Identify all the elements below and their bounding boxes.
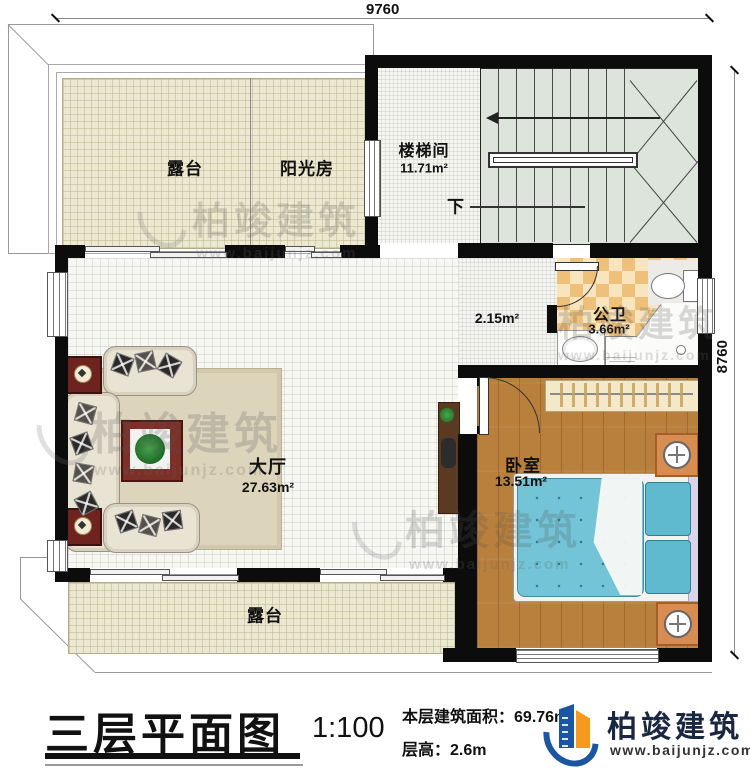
- wall-left-upper: [55, 245, 68, 272]
- desk-plant: [440, 408, 454, 422]
- plan-height-row: 层高：2.6m: [402, 736, 486, 760]
- table-plant: [135, 434, 165, 464]
- dimension-right-line: [734, 70, 735, 655]
- compass-medallion-icon: [74, 517, 92, 535]
- dimension-top-value: 9760: [366, 1, 399, 18]
- wall-left-middle: [55, 335, 68, 540]
- brand-website: www.baijunjz.com: [610, 742, 750, 758]
- plan-area-label: 本层建筑面积：: [402, 709, 514, 726]
- sofa-pillow: [162, 510, 183, 531]
- brand-logo-icon: [545, 700, 597, 762]
- sliding-door-panel: [150, 252, 227, 258]
- wall-bedroom-bottom-a: [443, 648, 516, 662]
- sliding-door-panel: [162, 575, 239, 581]
- dimension-top-line: [55, 18, 710, 19]
- bed-pillow-1: [645, 482, 691, 536]
- title-underline-thin: [45, 764, 303, 766]
- terrace-sunroom-divider: [250, 78, 251, 247]
- hall-label: 大厅: [249, 453, 287, 479]
- nightstand-top: [655, 433, 699, 477]
- nightstand-bottom: [656, 602, 700, 646]
- compass-medallion-icon: [74, 365, 92, 383]
- nightstand-lamp-icon: [664, 610, 692, 638]
- side-table-top: [66, 356, 102, 394]
- hall-left-window-lower: [47, 540, 68, 572]
- down-reference-line: [470, 206, 585, 208]
- skirt-left-line: [20, 557, 21, 599]
- stairs-down-label: 下: [447, 193, 465, 218]
- bed-pillow-2: [645, 540, 691, 594]
- stairwell-area: 11.71m²: [400, 161, 448, 176]
- sink-basin: [562, 336, 598, 362]
- nightstand-lamp-icon: [663, 441, 691, 469]
- stair-direction-line: [497, 117, 660, 119]
- wall-hall-bottom-b: [237, 568, 320, 582]
- sofa-pillow: [134, 350, 157, 373]
- bedroom-area: 13.51m²: [495, 473, 547, 489]
- wall-bathroom-left-stub: [547, 305, 557, 333]
- dimension-right-value: 8760: [714, 340, 731, 373]
- wall-sunroom-right-lower: [365, 215, 378, 246]
- stairwell-label: 楼梯间: [398, 137, 449, 161]
- brand-name: 柏竣建筑: [607, 702, 743, 746]
- hall-left-window-upper: [47, 272, 68, 337]
- toilet-bowl: [651, 273, 685, 299]
- sliding-door-panel: [320, 569, 387, 575]
- washing-machine: [605, 336, 640, 367]
- brand-building-orange-icon: [576, 710, 590, 748]
- plan-height-value: 2.6m: [450, 742, 486, 759]
- plan-scale: 1:100: [312, 712, 385, 745]
- wall-hall-top-c: [340, 245, 380, 258]
- skirt-bottom-line: [95, 672, 712, 673]
- terrace-bottom-label: 露台: [247, 602, 283, 627]
- sliding-door-panel: [85, 246, 160, 252]
- desk-chair: [441, 438, 456, 468]
- sunroom-label: 阳光房: [280, 155, 334, 180]
- sunroom-window: [364, 140, 381, 217]
- stair-handrail-inner: [493, 157, 633, 163]
- sliding-door-panel: [380, 575, 445, 581]
- bathroom-area: 3.66m²: [588, 322, 629, 337]
- sofa-pillow: [72, 462, 94, 484]
- terrace-top-label: 露台: [167, 155, 203, 180]
- brand-building-blue-icon: [559, 704, 574, 748]
- wall-bathroom-top: [590, 243, 712, 258]
- wardrobe-hangers: [551, 383, 692, 407]
- wall-sunroom-right-upper: [365, 68, 378, 140]
- sliding-door-panel: [311, 252, 342, 258]
- shower-drain: [676, 345, 686, 355]
- sliding-door-panel: [90, 569, 170, 575]
- wall-top: [365, 55, 712, 68]
- hall-area: 27.63m²: [242, 479, 294, 495]
- bedroom-window: [516, 649, 659, 663]
- title-underline: [45, 753, 300, 759]
- bathroom-window: [697, 278, 715, 334]
- floor-plan-page: 露台 阳光房 楼梯间 11.71m² 下 2.15m² 公卫 3.66m² 大厅…: [0, 0, 750, 775]
- wall-right-lower: [698, 332, 712, 662]
- wall-bedroom-top: [458, 365, 712, 378]
- plan-height-label: 层高：: [402, 742, 450, 759]
- wall-hall-top-b: [225, 245, 285, 258]
- stair-direction-arrowhead: [486, 112, 498, 124]
- wall-right-upper: [698, 55, 712, 278]
- wall-stair-bottom: [458, 243, 553, 258]
- corridor-area: 2.15m²: [475, 310, 519, 326]
